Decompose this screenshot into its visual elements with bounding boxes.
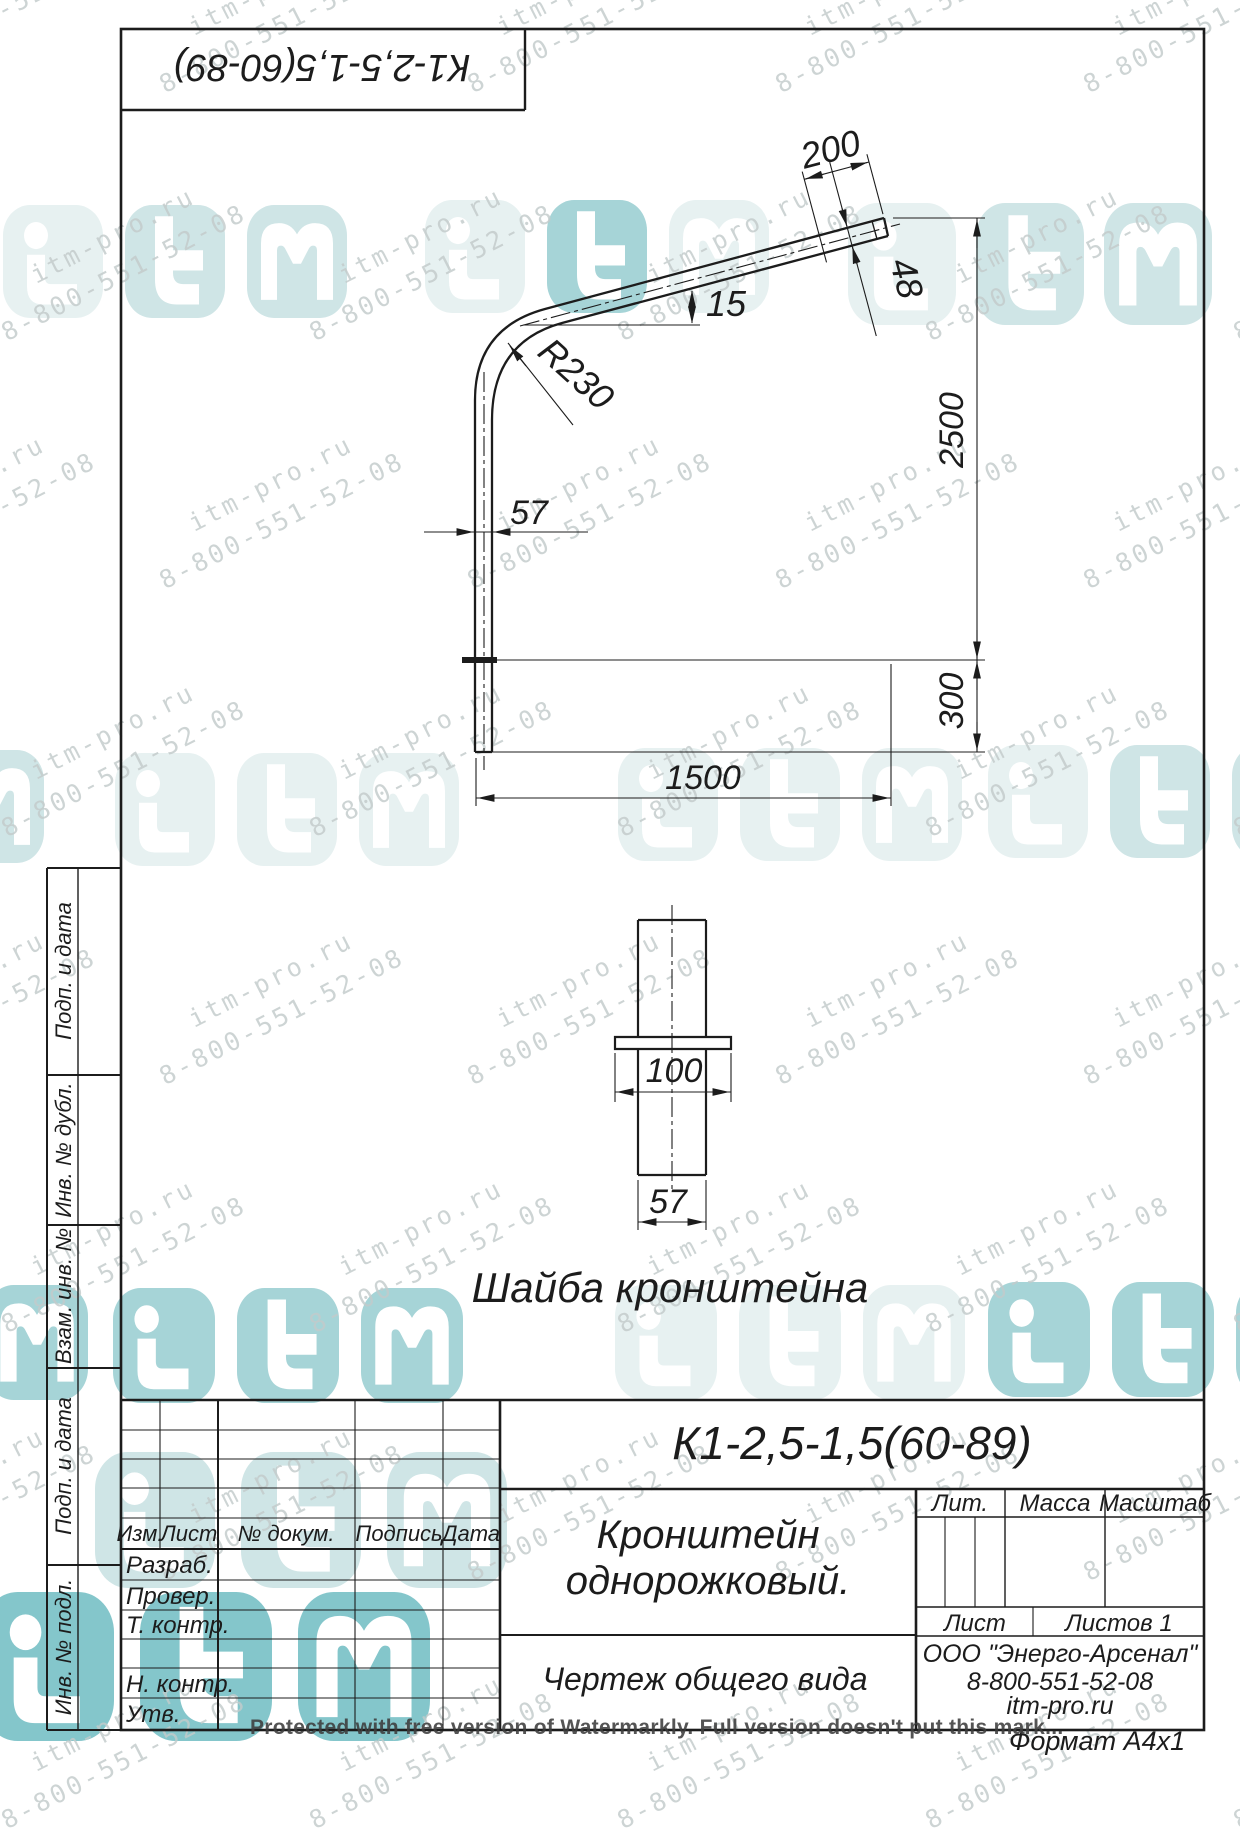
dim-48: 48 [882,253,932,302]
watermark-text: itm-pro.ru8-800-551-52-08 [1060,409,1240,600]
itm-logo-watermark [425,200,769,313]
company-name: ООО "Энерго-Арсенал" [923,1640,1199,1668]
dim-57-washer: 57 [649,1183,688,1221]
itm-logo-watermark [615,1285,965,1400]
header-dokum: № докум. [238,1521,335,1546]
part-name-line1: Кронштейн [596,1513,819,1557]
listov-label: Листов 1 [1063,1610,1172,1637]
itm-logo-letter-t-icon [125,205,225,318]
watermark-text: itm-pro.ru8-800-551-52-08 [136,0,412,103]
strip-label-inv-dubl: Инв. № дубл. [51,1082,76,1217]
drawing-sheet: { "page": {"width": 1240, "height": 1755… [0,0,1240,1755]
watermark-text: itm-pro.ru8-800-551-52-08 [0,905,103,1096]
itm-logo-letter-t-icon [976,203,1084,325]
itm-logo-letter-m-icon [863,1285,965,1400]
itm-logo-watermark [848,203,1212,325]
side-strip-lines [47,868,120,1730]
lit-label: Лит. [930,1490,988,1517]
watermark-text: itm-pro.ru8-800-551-52-08 [286,1649,562,1839]
dim-angle-15: 15 [706,283,747,324]
washer-outline [615,920,731,1175]
company-phone: 8-800-551-52-08 [967,1668,1153,1696]
watermark-text: itm-pro.ru8-800-551-52-08 [286,1153,562,1344]
watermark-text: itm-pro.ru8-800-551-52-08 [286,161,562,352]
itm-logo-letter-i-icon [95,1452,215,1588]
itm-logo-watermark [618,748,962,861]
itm-logo-letter-m-icon [387,1452,507,1588]
row-prover: Провер. [126,1583,215,1610]
washer-caption: Шайба кронштейна [472,1264,869,1311]
itm-logo-letter-i-icon [988,745,1088,858]
watermark-text: itm-pro.ru8-800-551-52-08 [1210,1649,1240,1839]
watermark-text: itm-pro.ru8-800-551-52-08 [902,1649,1178,1839]
doc-type: Чертеж общего вида [542,1661,867,1697]
watermark-text: itm-pro.ru8-800-551-52-08 [0,1649,253,1839]
watermark-text: itm-pro.ru8-800-551-52-08 [0,657,253,848]
header-data: Дата [439,1521,500,1546]
dim-57-main: 57 [510,494,549,532]
watermark-text: itm-pro.ru8-800-551-52-08 [752,1401,1028,1592]
row-razrab: Разраб. [126,1552,213,1579]
itm-logo-letter-i-icon [425,200,525,313]
itm-logo-letter-m-icon [669,200,769,313]
itm-logo-watermark [988,1282,1240,1397]
massa-label: Масса [1020,1490,1091,1517]
itm-logo-watermark [95,1452,507,1588]
itm-logo-letter-m-icon [0,1285,88,1400]
technical-drawing: К1-2,5-1,5(60-89) [0,0,1240,1755]
dim-100: 100 [646,1052,703,1090]
watermark-text: itm-pro.ru8-800-551-52-08 [594,1153,870,1344]
watermark-text: itm-pro.ru8-800-551-52-08 [0,0,103,103]
itm-logo-letter-t-icon [547,200,647,313]
watermark-text: itm-pro.ru8-800-551-52-08 [1060,0,1240,103]
washer-dimension-lines [615,1053,731,1230]
itm-logo-letter-m-icon [1232,745,1240,858]
watermark-text: itm-pro.ru8-800-551-52-08 [594,1649,870,1839]
masshtab-label: Масштаб [1099,1490,1213,1517]
watermark-text: itm-pro.ru8-800-551-52-08 [752,409,1028,600]
watermark-text: itm-pro.ru8-800-551-52-08 [752,905,1028,1096]
row-utv: Утв. [125,1701,181,1728]
itm-logo-letter-i-icon [3,205,103,318]
watermark-text: itm-pro.ru8-800-551-52-08 [136,409,412,600]
itm-logo-letter-i-icon [0,1592,114,1741]
text-watermark-layer: itm-pro.ru8-800-551-52-08itm-pro.ru8-800… [0,0,1240,1755]
itm-logo-watermark [115,753,459,866]
strip-label-podp-data-1: Подп. и дата [51,902,76,1040]
itm-logo-letter-i-icon [113,1288,215,1403]
titleblock-designation: К1-2,5-1,5(60-89) [672,1417,1032,1469]
watermark-text: itm-pro.ru8-800-551-52-08 [0,161,253,352]
watermark-text: itm-pro.ru8-800-551-52-08 [0,409,103,600]
title-block-lines [120,1400,1205,1730]
itm-logo-letter-m-icon [361,1288,463,1403]
strip-label-inv-podl: Инв. № подл. [51,1579,76,1716]
itm-logo-letter-i-icon [848,203,956,325]
itm-logo-watermark [0,1285,88,1400]
itm-logo-letter-t-icon [1112,1282,1214,1397]
row-nkontr: Н. контр. [126,1671,234,1698]
sheet-frame [120,29,1204,1730]
list-label: Лист [942,1610,1006,1637]
itm-logo-letter-m-icon [862,748,962,861]
watermark-text: itm-pro.ru8-800-551-52-08 [1060,1401,1240,1592]
watermark-text: itm-pro.ru8-800-551-52-08 [136,905,412,1096]
itm-logo-watermark [0,750,44,863]
dim-1500: 1500 [665,759,741,797]
header-izm: Изм. [117,1521,164,1546]
centerlines [484,224,900,770]
watermark-text: itm-pro.ru8-800-551-52-08 [0,1153,253,1344]
watermark-text: itm-pro.ru8-800-551-52-08 [902,1153,1178,1344]
itm-logo-letter-m-icon [359,753,459,866]
dim-300: 300 [933,673,971,730]
itm-logo-letter-t-icon [739,1285,841,1400]
row-tkontr: Т. контр. [126,1612,230,1639]
bracket-outline [462,218,888,752]
itm-logo-letter-m-icon [0,750,44,863]
watermark-text: itm-pro.ru8-800-551-52-08 [286,657,562,848]
watermark-text: itm-pro.ru8-800-551-52-08 [752,0,1028,103]
itm-logo-letter-t-icon [241,1452,361,1588]
itm-logo-letter-m-icon [247,205,347,318]
header-podpis: Подпись [355,1521,442,1546]
itm-logo-watermark [3,205,347,318]
watermark-text: itm-pro.ru8-800-551-52-08 [444,1401,720,1592]
watermark-text: itm-pro.ru8-800-551-52-08 [594,161,870,352]
top-designation-label: К1-2,5-1,5(60-89) [174,46,471,88]
strip-label-podp-data-2: Подп. и дата [51,1397,76,1535]
itm-logo-letter-i-icon [618,748,718,861]
watermark-text: itm-pro.ru8-800-551-52-08 [444,0,720,103]
itm-logo-letter-t-icon [237,1288,339,1403]
watermark-text: itm-pro.ru8-800-551-52-08 [902,161,1178,352]
itm-logo-letter-i-icon [115,753,215,866]
watermark-text: itm-pro.ru8-800-551-52-08 [1210,161,1240,352]
watermark-text: itm-pro.ru8-800-551-52-08 [136,1401,412,1592]
itm-logo-letter-i-icon [988,1282,1090,1397]
dim-200: 200 [795,121,865,176]
watermark-text: itm-pro.ru8-800-551-52-08 [902,657,1178,848]
part-name-line2: однорожковый. [566,1559,851,1603]
watermark-text: itm-pro.ru8-800-551-52-08 [594,657,870,848]
itm-logo-watermark [988,745,1240,858]
itm-logo-letter-m-icon [1236,1282,1240,1397]
watermark-text: itm-pro.ru8-800-551-52-08 [1210,1153,1240,1344]
itm-logo-watermark [113,1288,463,1403]
itm-logo-letter-t-icon [740,748,840,861]
tip-dimensions: 200 48 [793,113,939,343]
strip-label-vzam-inv: Взам. инв. № [51,1228,76,1364]
dim-radius-r230: R230 [531,330,622,418]
itm-logo-letter-i-icon [615,1285,717,1400]
itm-logo-letter-t-icon [237,753,337,866]
header-list: Лист [159,1521,218,1546]
watermark-text: itm-pro.ru8-800-551-52-08 [444,905,720,1096]
itm-logo-watermark-layer [0,0,1240,1755]
itm-logo-letter-m-icon [1104,203,1212,325]
watermark-text: itm-pro.ru8-800-551-52-08 [444,409,720,600]
dimension-lines [424,218,985,806]
dim-2500: 2500 [933,392,971,469]
watermark-text: itm-pro.ru8-800-551-52-08 [0,1401,103,1592]
watermark-text: itm-pro.ru8-800-551-52-08 [1060,905,1240,1096]
watermarkly-protected-text: Protected with free version of Watermark… [250,1716,950,1740]
watermark-text: itm-pro.ru8-800-551-52-08 [1210,657,1240,848]
itm-logo-letter-t-icon [1110,745,1210,858]
